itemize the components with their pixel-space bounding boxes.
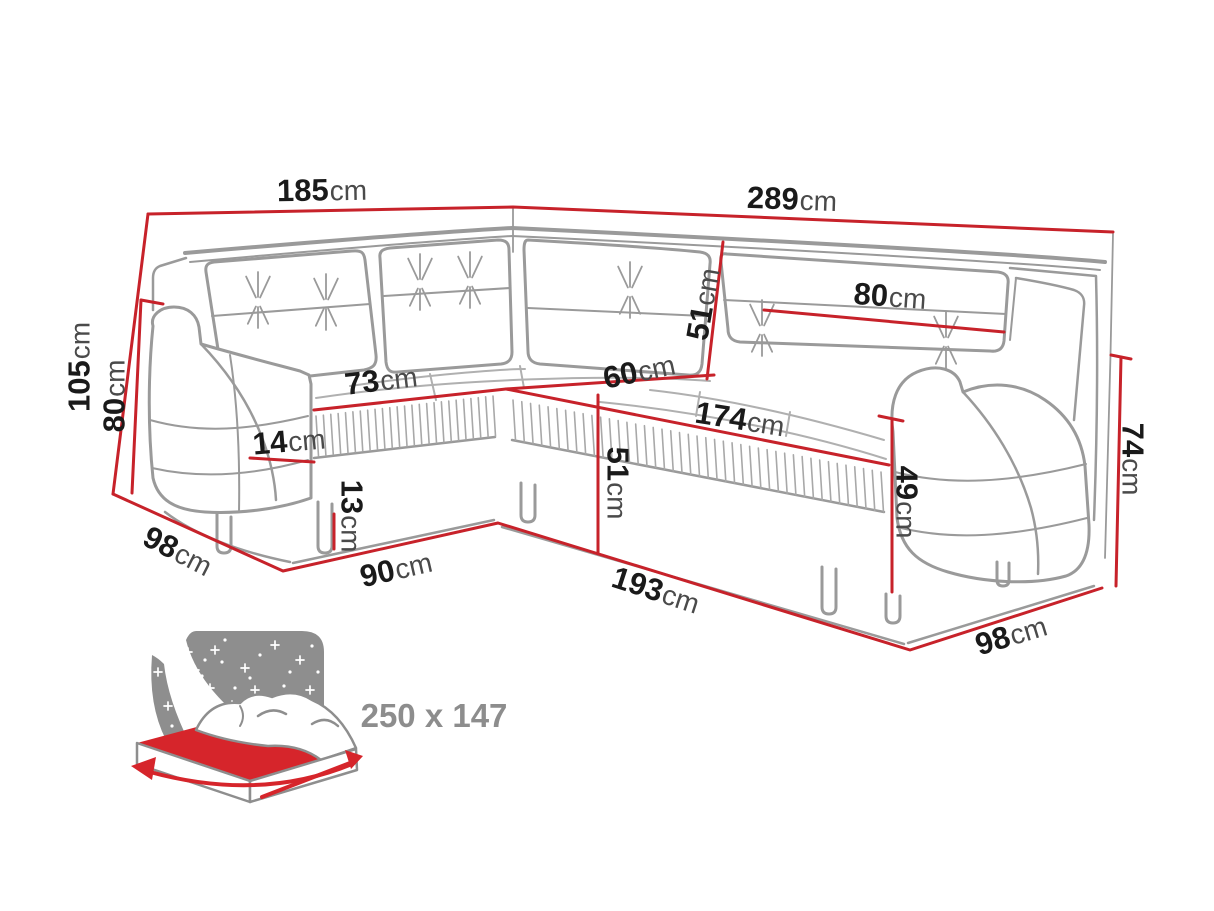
sleeping-area-label: 250 x 147 [361,697,508,735]
dim-label-total-width-left: 185cm [277,174,368,207]
bed-sleeping-function-icon [131,631,363,802]
dim-label-leg-height: 13cm [337,480,368,553]
dim-label-total-width-right: 289cm [746,182,837,216]
dim-label-total-height: 105cm [64,322,95,412]
dim-label-arm-side-height: 74cm [1118,423,1149,496]
dim-label-armrest-height: 49cm [892,466,923,539]
dim-label-backrest-height: 80cm [99,360,130,433]
sofa-dimension-diagram: 185cm 289cm 105cm 80cm 98cm 73cm 14cm 13… [0,0,1214,911]
dim-label-seat-height: 51cm [603,447,634,520]
dim-label-back-cushion-width: 80cm [853,278,928,314]
dim-label-armrest-width: 14cm [251,422,326,459]
